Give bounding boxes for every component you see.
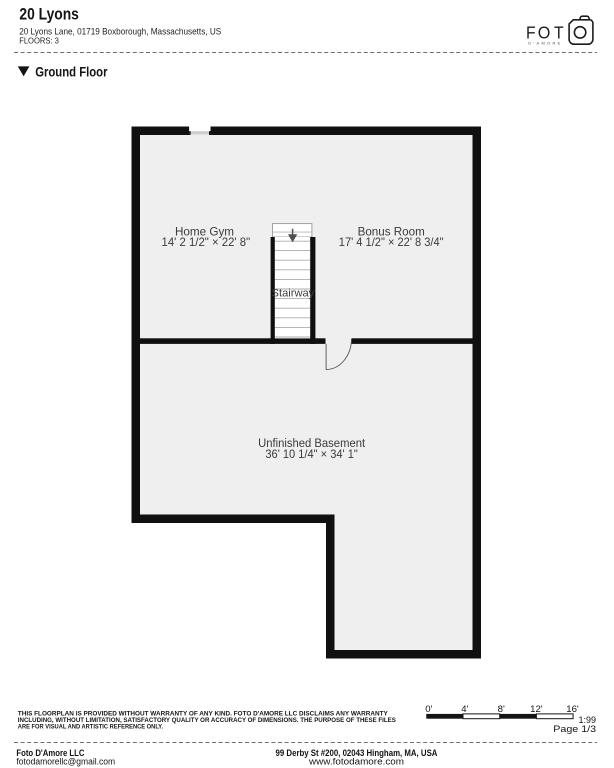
svg-text:36' 10 1/4" × 34' 1": 36' 10 1/4" × 34' 1" [265, 447, 357, 461]
svg-text:8': 8' [498, 704, 505, 715]
svg-text:12': 12' [530, 704, 543, 715]
svg-text:4': 4' [461, 704, 468, 715]
svg-text:T: T [554, 23, 564, 43]
svg-text:fotodamorellc@gmail.com: fotodamorellc@gmail.com [16, 756, 115, 766]
svg-text:20 Lyons Lane, 01719 Boxboroug: 20 Lyons Lane, 01719 Boxborough, Massach… [19, 25, 221, 36]
svg-text:16': 16' [566, 704, 579, 715]
svg-text:Page 1/3: Page 1/3 [553, 723, 596, 734]
svg-text:ARE FOR VISUAL AND ARTISTIC RE: ARE FOR VISUAL AND ARTISTIC REFERENCE ON… [18, 723, 164, 730]
svg-text:F: F [526, 23, 536, 43]
svg-text:www.fotodamore.com: www.fotodamore.com [308, 756, 404, 766]
svg-text:14' 2 1/2" × 22' 8": 14' 2 1/2" × 22' 8" [162, 235, 251, 249]
svg-text:20 Lyons: 20 Lyons [19, 4, 79, 23]
svg-text:Ground Floor: Ground Floor [35, 63, 108, 79]
svg-text:17' 4 1/2" × 22' 8 3/4": 17' 4 1/2" × 22' 8 3/4" [339, 235, 444, 249]
svg-text:0': 0' [425, 704, 432, 715]
svg-text:FLOORS: 3: FLOORS: 3 [19, 37, 59, 46]
svg-text:O: O [538, 23, 551, 43]
svg-text:Stairway: Stairway [272, 287, 315, 299]
